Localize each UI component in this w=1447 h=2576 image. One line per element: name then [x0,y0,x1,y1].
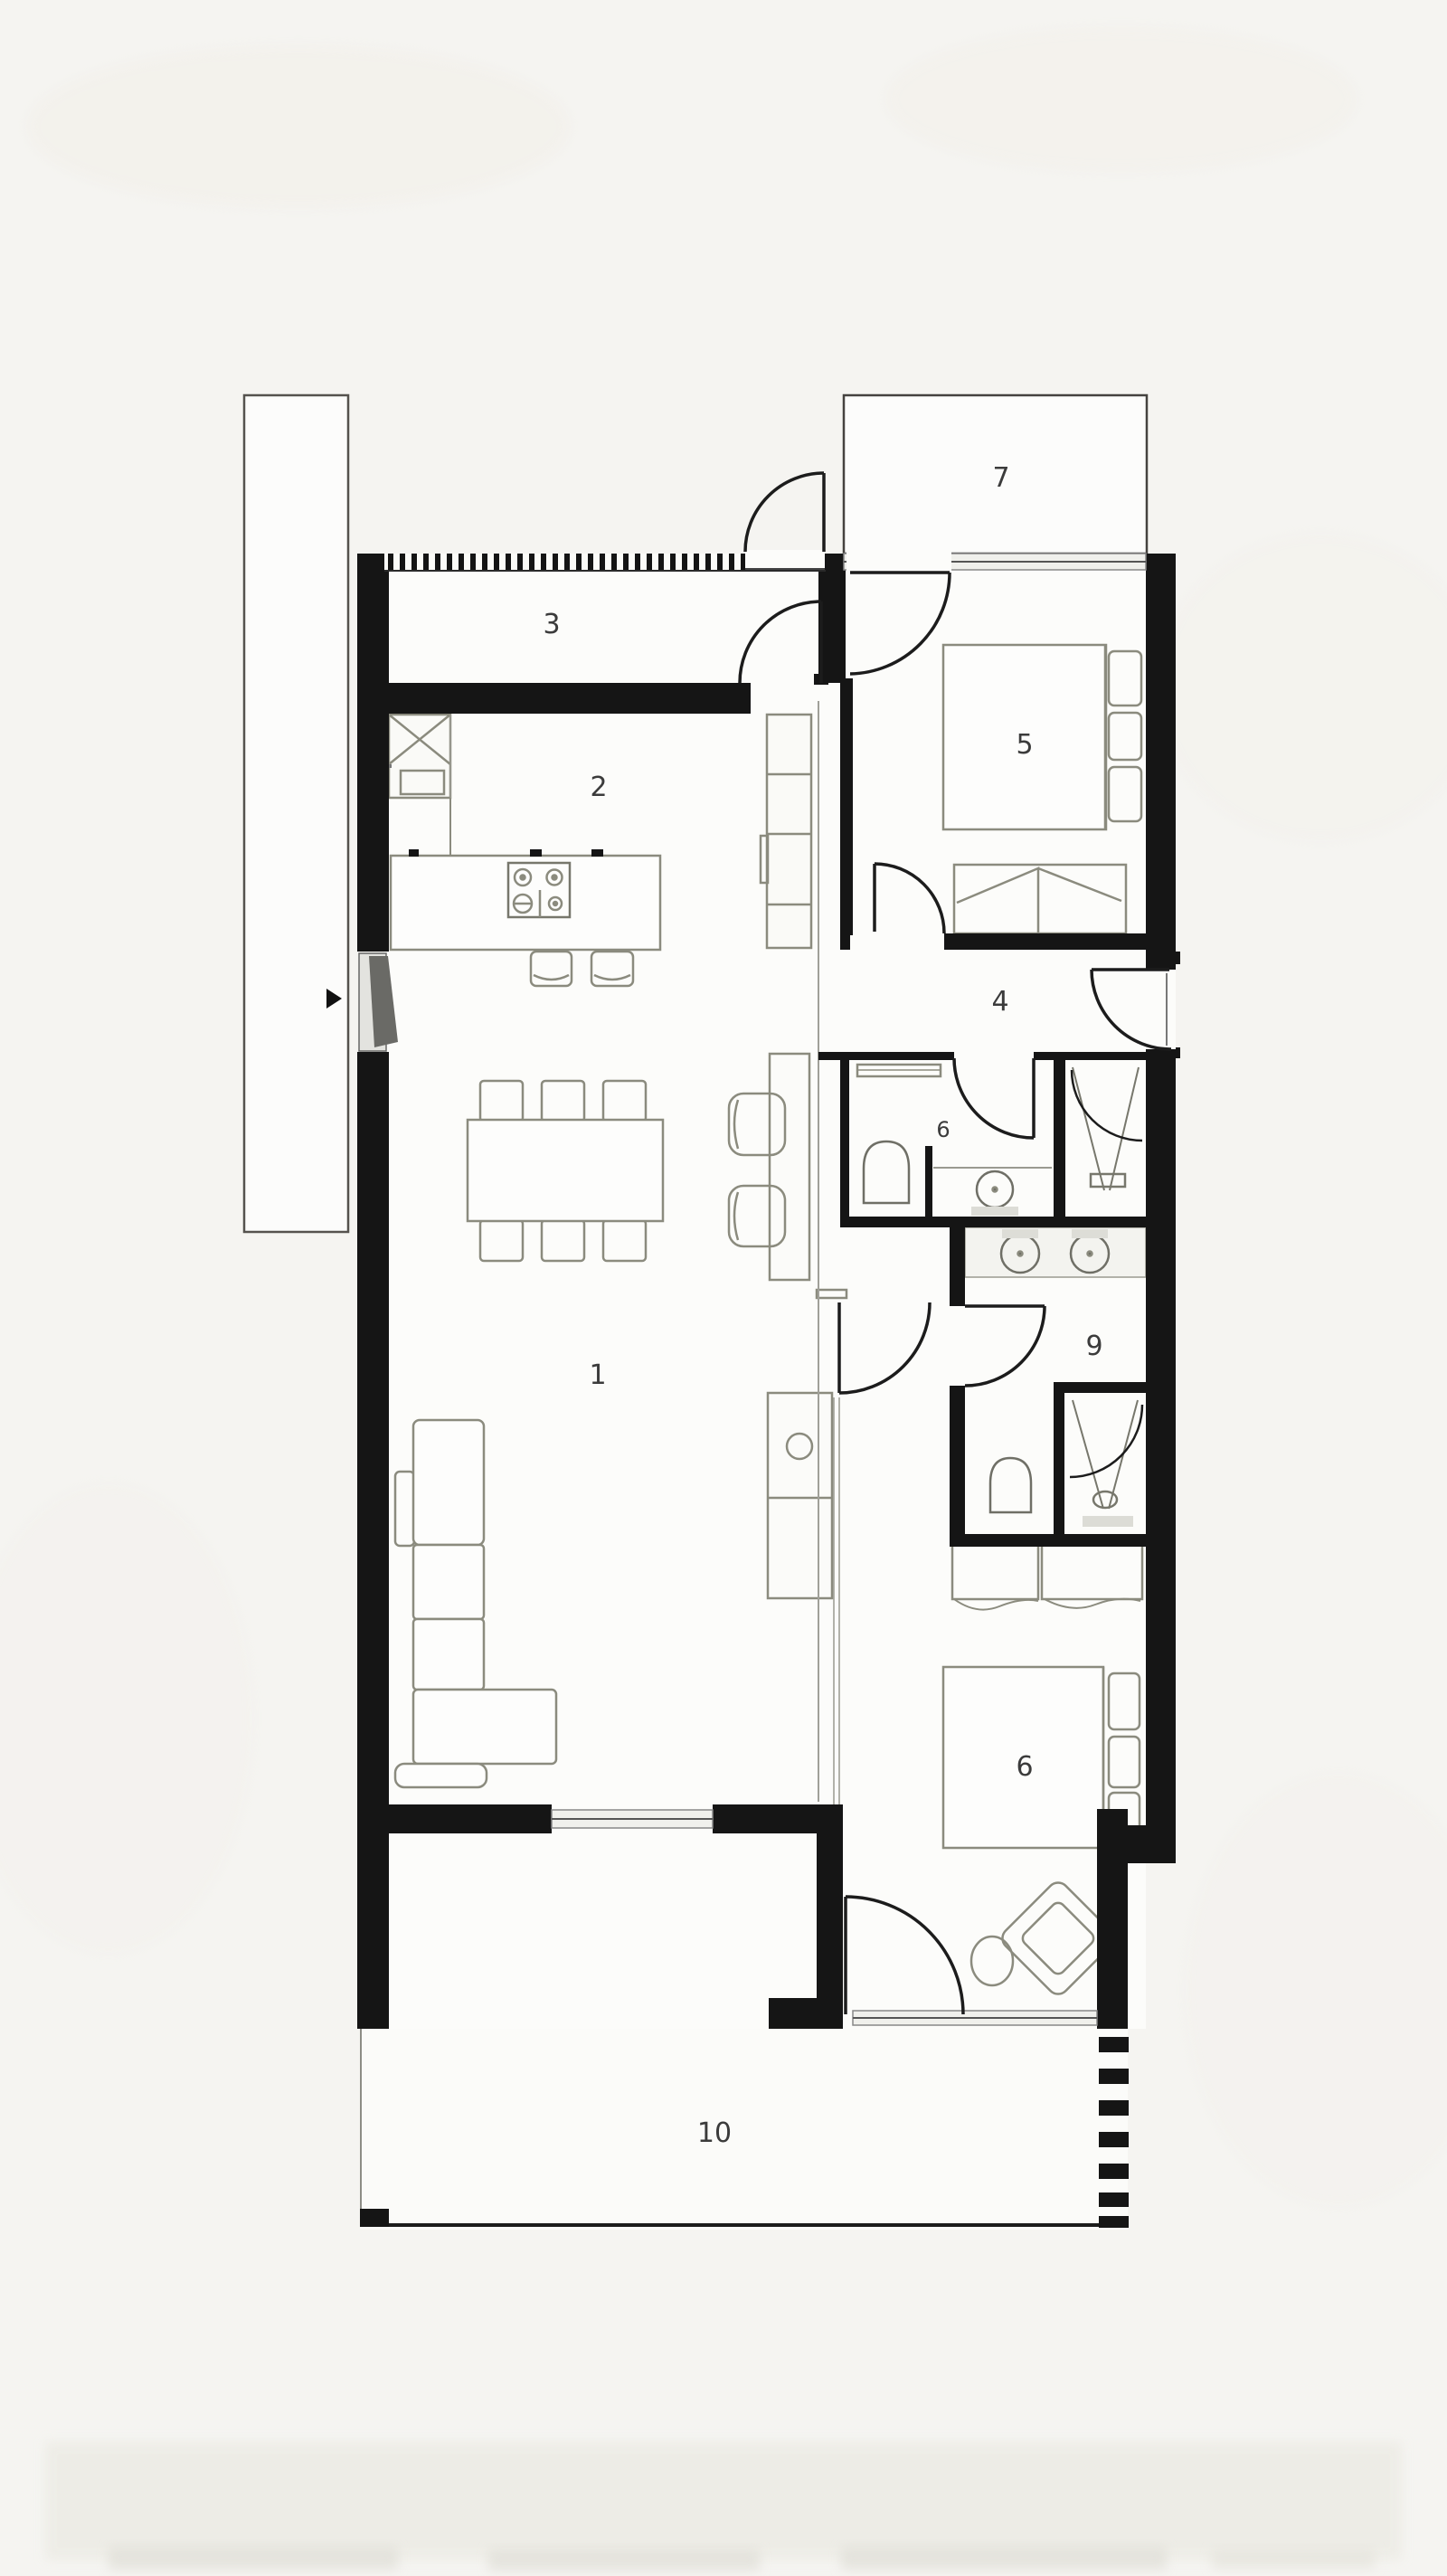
room-label-bathroom: 6 [936,1117,950,1142]
wall-ensuite-south [950,1534,1146,1547]
wall-south-living [384,1804,552,1833]
terrace [360,2029,1129,2230]
hall-east-opening [1146,970,1176,1049]
wall-hall-south [1034,1052,1146,1060]
tall-cabinets [761,715,811,948]
floor-plan-canvas: 1 2 3 4 5 6 7 6 9 10 [0,0,1447,2576]
wall-shower-a [1054,1060,1065,1218]
floor-plan: 1 2 3 4 5 6 7 6 9 10 [0,0,1447,2576]
wall-shower-b [1054,1382,1064,1534]
dresser [952,1542,1142,1610]
kitchen-island [391,849,660,950]
room-label-ensuite: 9 [1085,1331,1102,1362]
wall-niche-bottom [769,1998,843,2029]
wall-niche-top [769,1804,843,1833]
room-label-terrace: 10 [697,2117,732,2149]
room-label-bed-lower: 6 [1016,1751,1033,1783]
wall-entry-kitchen [384,683,751,714]
room-label-entry: 3 [543,609,560,640]
wall-niche-right [817,1833,843,1998]
room-label-balcony: 7 [992,462,1009,494]
room-label-living: 1 [589,1359,606,1391]
room-label-bed-upper: 5 [1016,729,1033,761]
wall-bath-west [840,1052,849,1218]
bench-upper [954,865,1126,933]
wall-bath-partition [925,1146,932,1218]
wall-west-lower [357,1052,389,2029]
wall-bath-vanity [840,1217,1146,1227]
wall-east-upper [1146,554,1176,970]
wall-east-mid [1146,1049,1176,1863]
carport-outline [244,395,348,1232]
room-label-hallway: 4 [991,986,1008,1018]
double-vanity [965,1227,1146,1277]
balcony-door-opening [846,550,951,573]
wall-bed5-west [840,678,853,935]
wall-east-lower [1097,1809,1128,2029]
room-label-kitchen: 2 [590,772,607,803]
bottom-smudge-band [45,2442,1402,2571]
dining-set [468,1081,663,1261]
wall-ensuite-west [950,1386,965,1547]
wall-west-upper [357,554,389,952]
wall-bed5-south [944,933,1146,950]
